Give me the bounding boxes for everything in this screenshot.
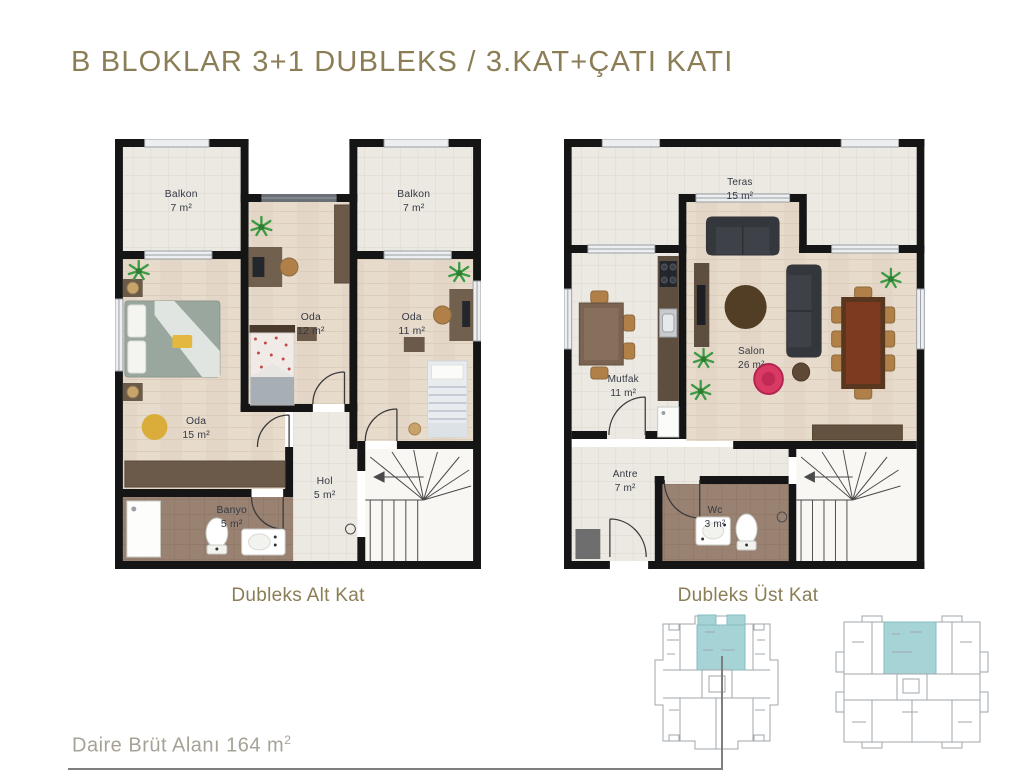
gross-area-label: Daire Brüt Alanı 164 m2 (72, 733, 291, 758)
room-area: 7 m² (403, 203, 425, 214)
toilet (736, 514, 757, 550)
sofa (787, 265, 821, 357)
gross-area-text: Daire Brüt Alanı 164 m (72, 735, 284, 757)
room-area: 11 m² (398, 326, 425, 337)
wardrobe (125, 461, 285, 487)
room-area: 12 m² (297, 326, 325, 337)
round-rug (725, 285, 767, 329)
room-label: Salon (738, 346, 765, 357)
room-label: Antre (613, 469, 638, 480)
keyplan-leader-line-vertical (721, 656, 723, 768)
nightstand (404, 337, 425, 352)
caption-ust-kat: Dubleks Üst Kat (564, 585, 932, 607)
wardrobe (335, 205, 350, 283)
room-area: 26 m² (738, 360, 765, 371)
page-title: B BLOKLAR 3+1 DUBLEKS / 3.KAT+ÇATI KATI (71, 46, 733, 79)
caption-alt-kat: Dubleks Alt Kat (115, 585, 481, 607)
highlighted-unit (884, 622, 936, 674)
side-table (792, 363, 809, 381)
floor-plan-ust-kat: Teras 15 m² Mutfak 11 m² Salon 26 m² Ant… (564, 139, 932, 569)
elevator-shaft (575, 529, 600, 559)
tv-unit (694, 263, 709, 347)
room-label: Banyo (217, 505, 247, 516)
room-label: Balkon (397, 189, 430, 200)
room-area: 5 m² (314, 490, 336, 501)
stove (660, 261, 677, 287)
room-area: 15 m² (727, 191, 754, 202)
round-rug (142, 414, 168, 440)
room-area: 15 m² (182, 430, 210, 441)
room-label: Teras (727, 177, 752, 188)
sink (242, 529, 286, 555)
room-area: 7 m² (170, 203, 192, 214)
room-area: 3 m² (705, 519, 726, 530)
basket (409, 423, 421, 435)
room-label: Hol (317, 476, 333, 487)
single-bed (428, 361, 468, 437)
room-area: 7 m² (615, 483, 636, 494)
shower (127, 501, 161, 557)
key-plan-block-upper (822, 612, 1002, 752)
room-label: Mutfak (608, 374, 640, 385)
sofa (706, 217, 779, 255)
gross-area-superscript: 2 (284, 733, 291, 747)
room-label: Wc (708, 505, 723, 516)
sideboard (813, 425, 903, 440)
room-area: 11 m² (610, 388, 636, 399)
dishwasher (658, 407, 679, 437)
single-bed (250, 325, 296, 405)
kitchen-sink (660, 309, 677, 337)
stair-floor (796, 449, 916, 561)
room-label: Oda (186, 416, 206, 427)
floor-plan-sheet: B BLOKLAR 3+1 DUBLEKS / 3.KAT+ÇATI KATI (0, 0, 1011, 776)
room-label: Oda (301, 312, 321, 323)
keyplan-leader-line-horizontal (68, 768, 723, 770)
office-chair (280, 258, 298, 276)
key-plan-block-lower (645, 610, 788, 755)
floor-plan-alt-kat: Balkon 7 m² Oda 12 m² Balkon 7 m² Oda 11… (115, 139, 481, 569)
room-area: 5 m² (221, 519, 243, 530)
room-label: Balkon (165, 189, 198, 200)
room-label: Oda (402, 312, 422, 323)
office-chair (434, 306, 452, 324)
double-bed (125, 301, 220, 377)
